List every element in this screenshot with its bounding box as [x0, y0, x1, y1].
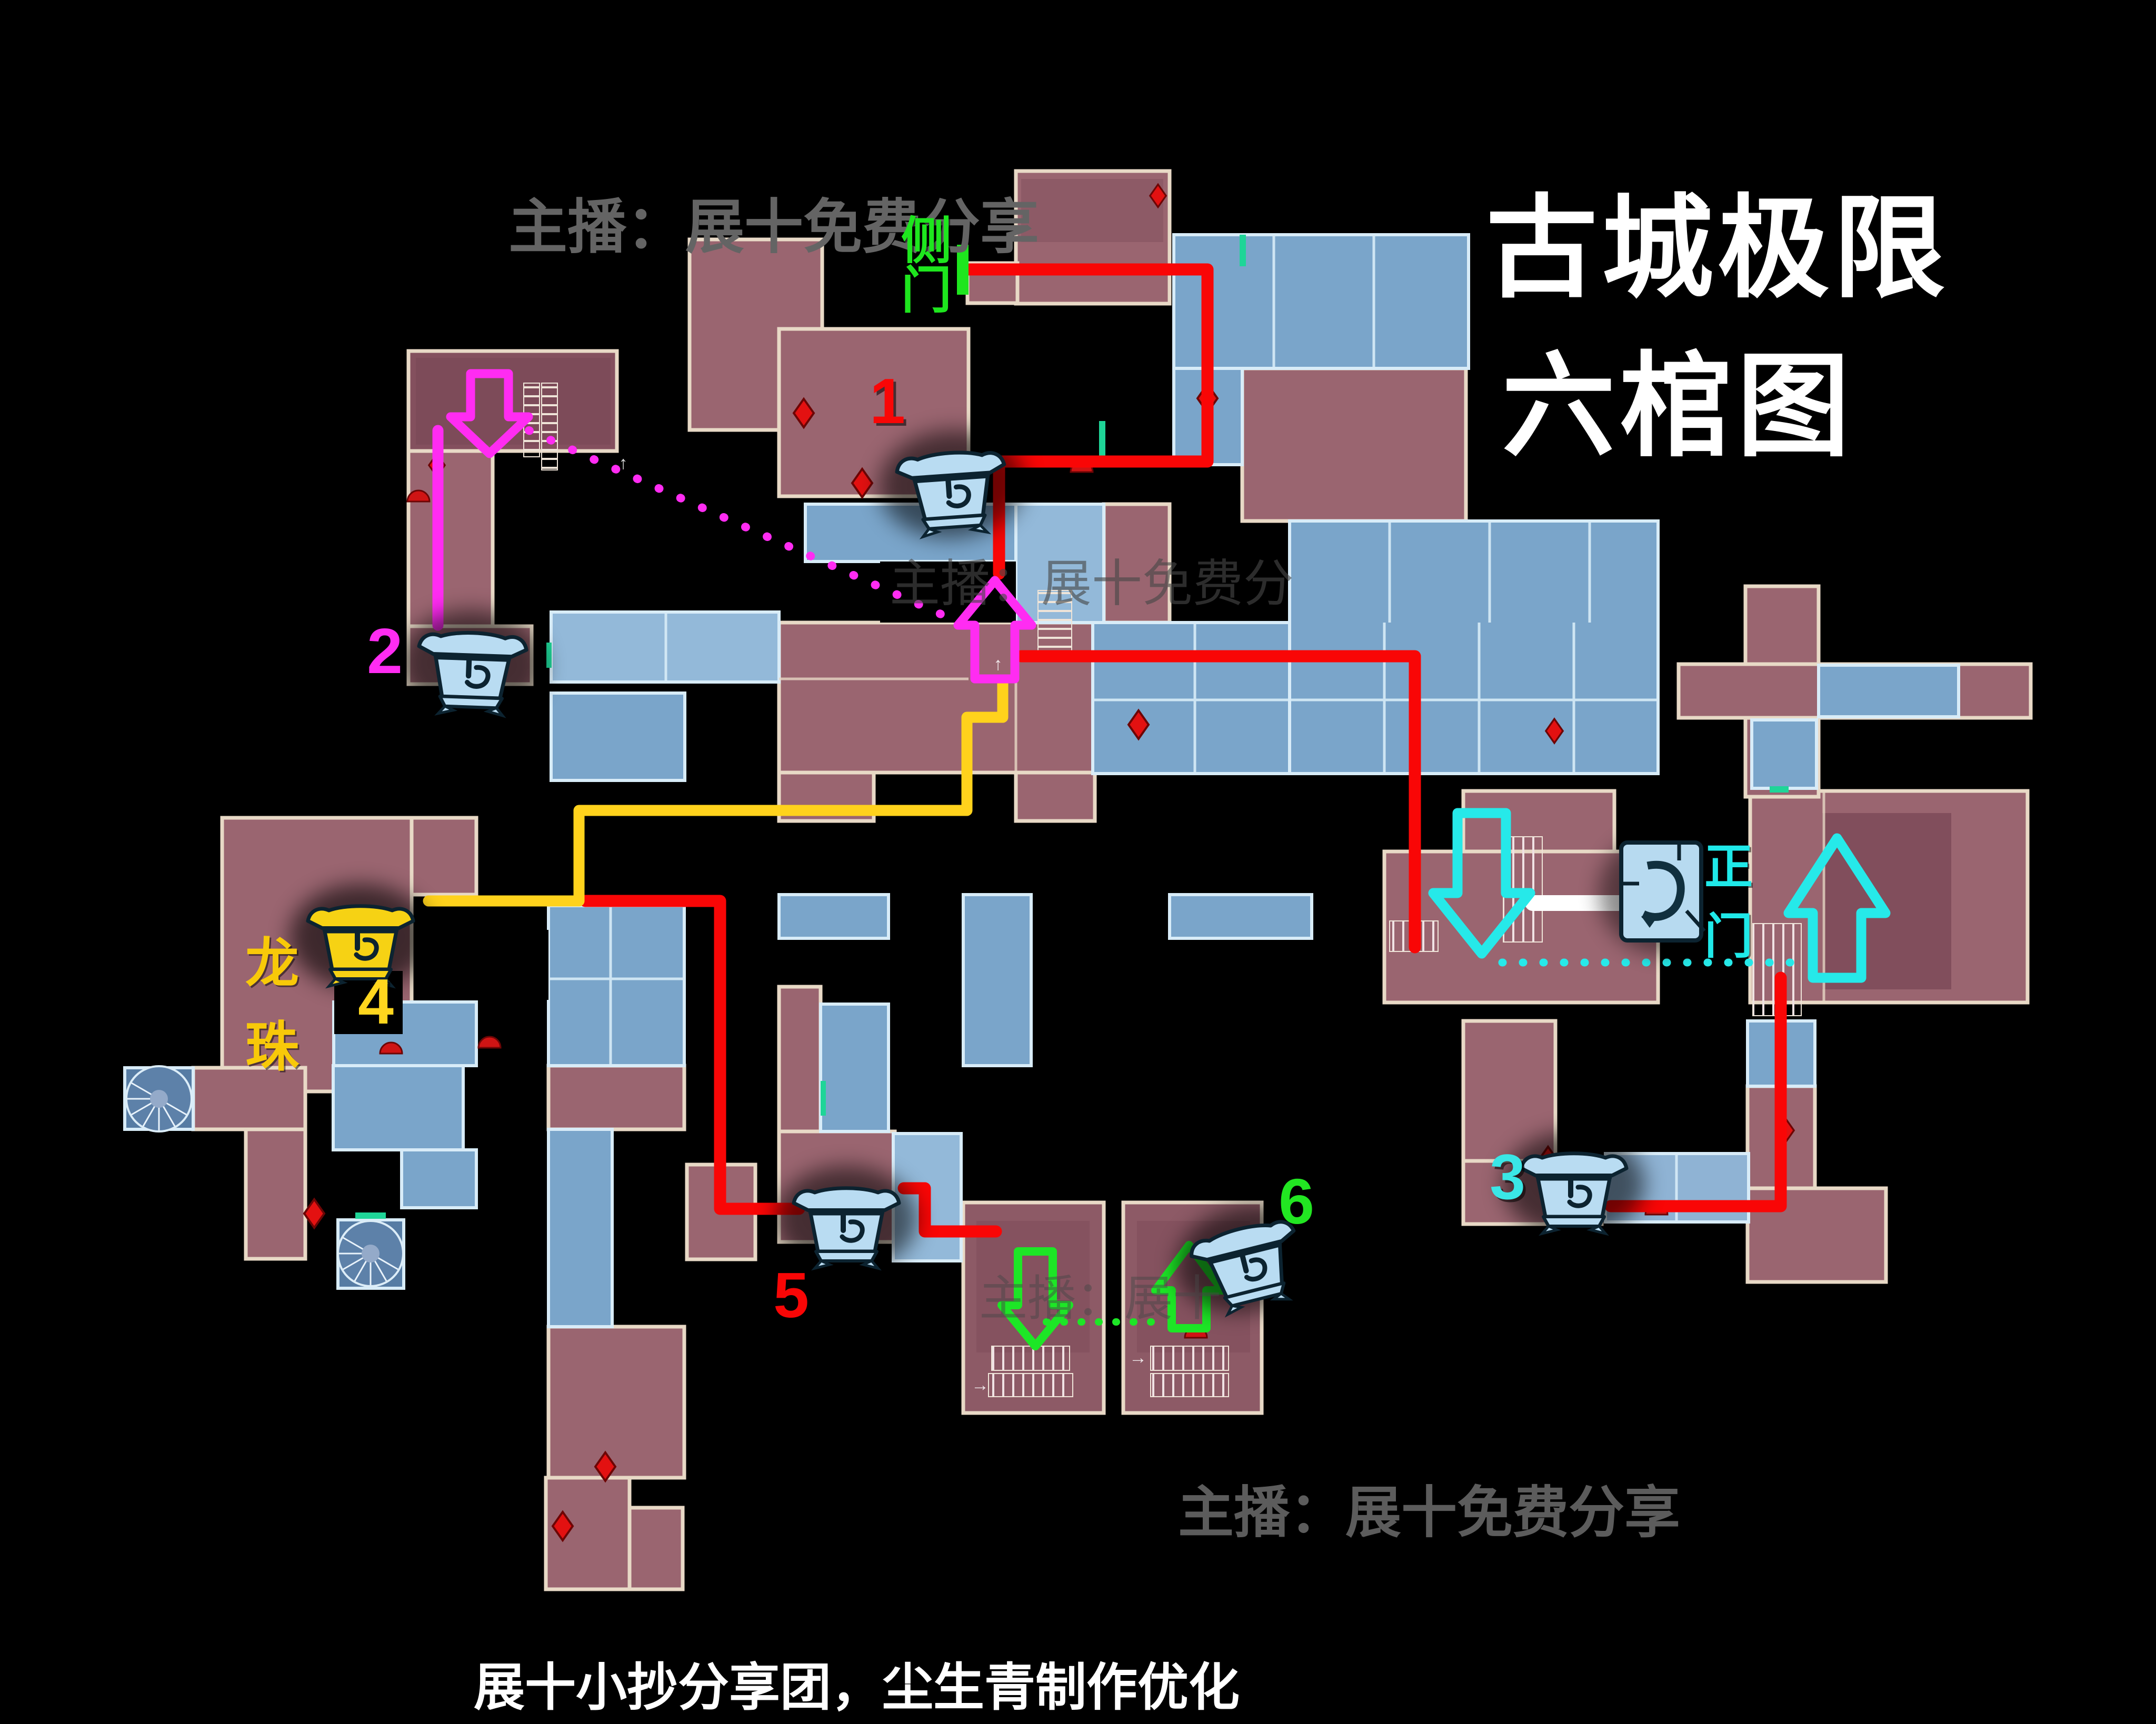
coffin-number-1: 1	[870, 369, 905, 433]
watermark-top: 主播：展十免费分享	[508, 198, 1039, 257]
door-teal-bar	[1240, 235, 1246, 266]
stair-right-glyph: →	[1129, 1349, 1147, 1367]
spiral-staircase-icon	[338, 1221, 403, 1286]
map-guide-image: 古城极限 六棺图 主播：展十免费分享 主播：展十免费分 主播：展十 主播：展十免…	[0, 0, 2156, 1724]
door-teal-bar	[1770, 786, 1789, 793]
coffin-number-6: 6	[1279, 1169, 1314, 1234]
red-arc-marker	[478, 1037, 501, 1048]
room	[412, 818, 476, 895]
main-gate-label: 正门	[1704, 833, 1753, 972]
staircase	[1151, 1346, 1229, 1370]
watermark-middle-upper: 主播：展十免费分	[890, 559, 1294, 609]
room	[333, 1066, 463, 1150]
map-title-line2: 六棺图	[1502, 350, 1854, 463]
staircase	[992, 1346, 1070, 1370]
door-teal-bar	[546, 643, 552, 668]
spiral-staircase-icon	[126, 1066, 192, 1131]
coffin-icon-5	[775, 1166, 917, 1271]
room	[1290, 521, 1658, 774]
room	[548, 1129, 612, 1327]
room	[779, 987, 821, 1131]
coffin-number-2: 2	[367, 619, 403, 683]
room	[1752, 720, 1816, 788]
stair-up-glyph: ↑	[619, 454, 628, 472]
room	[963, 895, 1031, 1066]
room	[548, 1066, 684, 1129]
credit-line: 展十小抄分享团，尘生青制作优化	[474, 1662, 1240, 1713]
door-teal-bar	[355, 1212, 386, 1219]
room	[1819, 665, 1959, 717]
room	[630, 1508, 683, 1589]
room	[1242, 368, 1466, 521]
room	[779, 895, 889, 938]
watermark-bottom: 主播：展十免费分享	[1178, 1485, 1680, 1541]
side-gate-label: 侧门	[901, 217, 952, 316]
room	[548, 906, 684, 1066]
coffin-number-5: 5	[773, 1263, 809, 1327]
room	[548, 1327, 684, 1478]
room	[1170, 895, 1312, 938]
staircase	[542, 383, 557, 470]
watermark-middle-lower: 主播：展十	[979, 1275, 1221, 1323]
room	[821, 1004, 889, 1131]
room	[1016, 773, 1095, 821]
door-teal-bar	[821, 1081, 826, 1116]
red-diamond-marker	[304, 1199, 324, 1228]
stair-up-glyph: ↑	[994, 655, 1003, 673]
coffin-number-4: 4	[358, 969, 394, 1034]
coffin-number-3: 3	[1490, 1145, 1525, 1209]
staircase	[989, 1374, 1073, 1397]
map-title-line1: 古城极限	[1486, 193, 1949, 304]
dragon-pearl-label: 龙珠	[245, 922, 299, 1089]
room	[1093, 623, 1290, 774]
room	[551, 693, 685, 780]
room	[1174, 235, 1469, 368]
staircase	[1151, 1374, 1229, 1397]
room	[246, 1129, 305, 1259]
room	[402, 1150, 476, 1208]
stair-right-glyph: →	[971, 1376, 989, 1394]
